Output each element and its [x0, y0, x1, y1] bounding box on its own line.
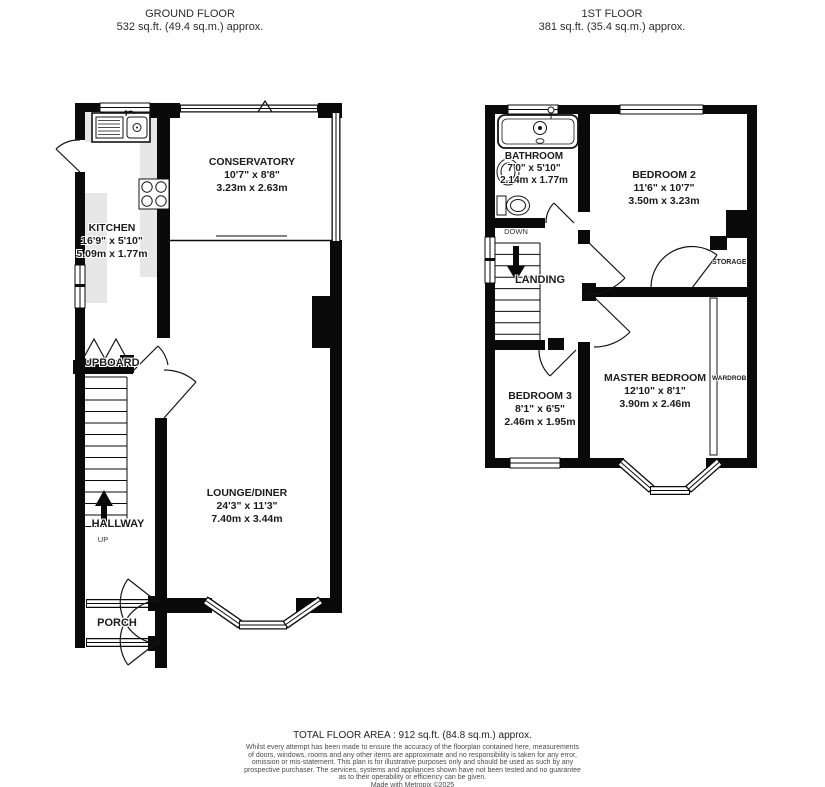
room-dims-metric: 3.23m x 2.63m: [172, 182, 332, 195]
room-name: LOUNGE/DINER: [167, 487, 327, 500]
room-dims-metric: 7.40m x 3.44m: [167, 513, 327, 526]
room-dims-metric: 2.46m x 1.95m: [460, 416, 620, 429]
room-label-bathroom: BATHROOM 7'0" x 5'10" 2.14m x 1.77m: [474, 151, 594, 187]
total-floor-area: TOTAL FLOOR AREA : 912 sq.ft. (84.8 sq.m…: [0, 730, 825, 741]
room-name: CONSERVATORY: [172, 156, 332, 169]
credit-line: Made with Metropix ©2025: [0, 782, 825, 787]
room-name: BEDROOM 2: [584, 169, 744, 182]
room-dims-imperial: 12'10" x 8'1": [575, 385, 735, 398]
room-label-kitchen: KITCHEN 16'9" x 5'10" 5.09m x 1.77m: [52, 222, 172, 261]
room-label-hallway: HALLWAY: [78, 518, 158, 530]
label-wardrobe: WARDROBE: [712, 375, 746, 382]
room-dims-imperial: 16'9" x 5'10": [52, 235, 172, 248]
room-dims-metric: 3.50m x 3.23m: [584, 195, 744, 208]
floorplan-page: GROUND FLOOR 532 sq.ft. (49.4 sq.m.) app…: [0, 0, 825, 787]
kitchen-sink-icon: [92, 110, 150, 142]
room-label-cupboard: CUPBOARD: [85, 357, 143, 369]
room-label-lounge-diner: LOUNGE/DINER 24'3" x 11'3" 7.40m x 3.44m: [167, 487, 327, 526]
disclaimer-line: omission or mis-statement. This plan is …: [0, 759, 825, 767]
label-up: UP: [88, 535, 118, 544]
room-dims-imperial: 11'6" x 10'7": [584, 182, 744, 195]
room-label-conservatory: CONSERVATORY 10'7" x 8'8" 3.23m x 2.63m: [172, 156, 332, 195]
room-label-bedroom2: BEDROOM 2 11'6" x 10'7" 3.50m x 3.23m: [584, 169, 744, 208]
room-label-porch: PORCH: [77, 617, 157, 629]
gf-room-divider: [170, 236, 332, 241]
room-label-landing: LANDING: [490, 274, 590, 286]
room-dims-metric: 3.90m x 2.46m: [575, 398, 735, 411]
room-dims-metric: 5.09m x 1.77m: [52, 248, 172, 261]
room-dims-imperial: 7'0" x 5'10": [474, 163, 594, 175]
room-dims-imperial: 10'7" x 8'8": [172, 169, 332, 182]
room-label-storage: STORAGE: [712, 259, 746, 266]
disclaimer-line: as to their operability or efficiency ca…: [0, 774, 825, 782]
disclaimer-line: of doors, windows, rooms and any other i…: [0, 752, 825, 760]
disclaimer-line: Whilst every attempt has been made to en…: [0, 744, 825, 752]
room-dims-metric: 2.14m x 1.77m: [474, 175, 594, 187]
stove-icon: [139, 179, 169, 209]
room-name: MASTER BEDROOM: [575, 372, 735, 385]
label-down: DOWN: [496, 227, 536, 236]
room-name: BATHROOM: [474, 151, 594, 163]
disclaimer-line: prospective purchaser. The services, sys…: [0, 767, 825, 775]
room-label-master-bedroom: MASTER BEDROOM 12'10" x 8'1" 3.90m x 2.4…: [575, 372, 735, 411]
room-name: KITCHEN: [52, 222, 172, 235]
toilet-icon: [497, 196, 530, 215]
room-dims-imperial: 24'3" x 11'3": [167, 500, 327, 513]
